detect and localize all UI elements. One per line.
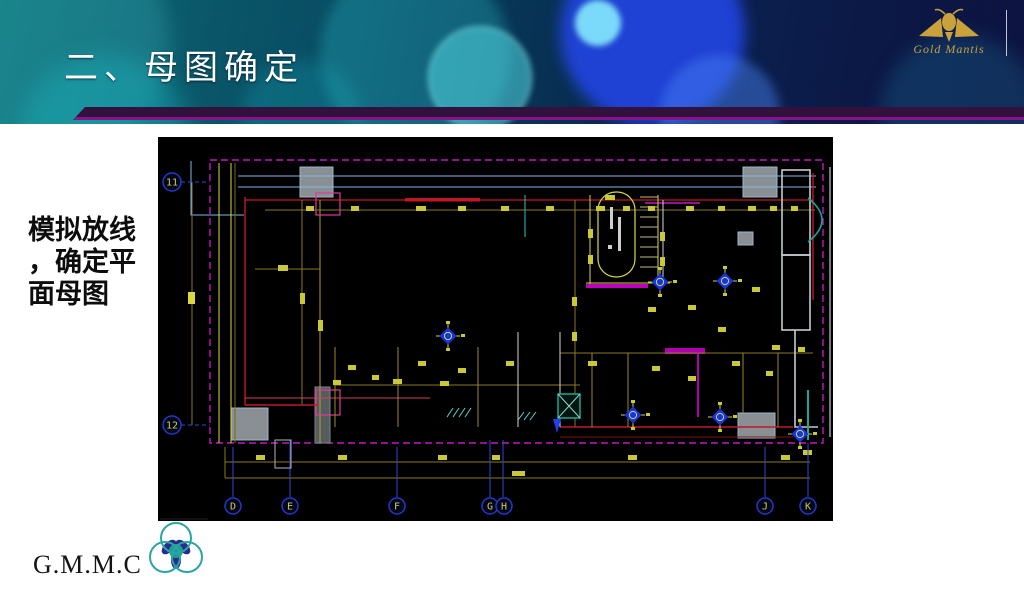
brand-logo: Gold Mantis bbox=[893, 6, 1005, 64]
grid-bubble-h: H bbox=[496, 498, 512, 514]
bokeh-circle bbox=[575, 0, 621, 46]
svg-text:H: H bbox=[501, 502, 507, 513]
svg-text:11: 11 bbox=[166, 178, 178, 189]
cad-drawing: 11 12 D E F bbox=[158, 137, 833, 521]
cad-floorplan-image: 11 12 D E F bbox=[158, 137, 833, 521]
brand-logo-text: Gold Mantis bbox=[893, 42, 1005, 57]
logo-divider-line bbox=[1006, 10, 1007, 56]
side-note-line: ，确定平 bbox=[28, 246, 158, 278]
accent-bar bbox=[73, 107, 1024, 120]
footer-brand: G.M.M.C bbox=[33, 550, 142, 580]
gold-mantis-emblem bbox=[893, 6, 1005, 46]
grid-bubble-d: D bbox=[225, 498, 241, 514]
svg-text:F: F bbox=[394, 502, 400, 513]
svg-text:D: D bbox=[230, 502, 236, 513]
svg-text:J: J bbox=[762, 502, 768, 513]
grid-bubble-11: 11 bbox=[163, 173, 210, 191]
page-title: 二、母图确定 bbox=[64, 52, 304, 86]
grid-bubble-f: F bbox=[389, 498, 405, 514]
grid-bubble-e: E bbox=[282, 498, 298, 514]
svg-text:12: 12 bbox=[166, 421, 178, 432]
slide: 二、母图确定 Gold Mantis 模拟放线 ，确定平 面母图 bbox=[0, 0, 1024, 604]
grid-bubble-12: 12 bbox=[163, 416, 210, 434]
svg-text:K: K bbox=[805, 502, 811, 513]
side-note-line: 模拟放线 bbox=[28, 214, 158, 246]
cad-bottom-dimensions bbox=[225, 440, 810, 497]
svg-text:G: G bbox=[487, 502, 493, 513]
grid-bubble-j: J bbox=[757, 498, 773, 514]
side-note: 模拟放线 ，确定平 面母图 bbox=[28, 214, 158, 310]
header-banner: 二、母图确定 Gold Mantis bbox=[0, 0, 1024, 124]
gmmc-tricircle-logo bbox=[142, 516, 210, 584]
side-note-line: 面母图 bbox=[28, 278, 158, 310]
grid-bubble-k: K bbox=[800, 498, 816, 514]
svg-text:E: E bbox=[287, 502, 293, 513]
